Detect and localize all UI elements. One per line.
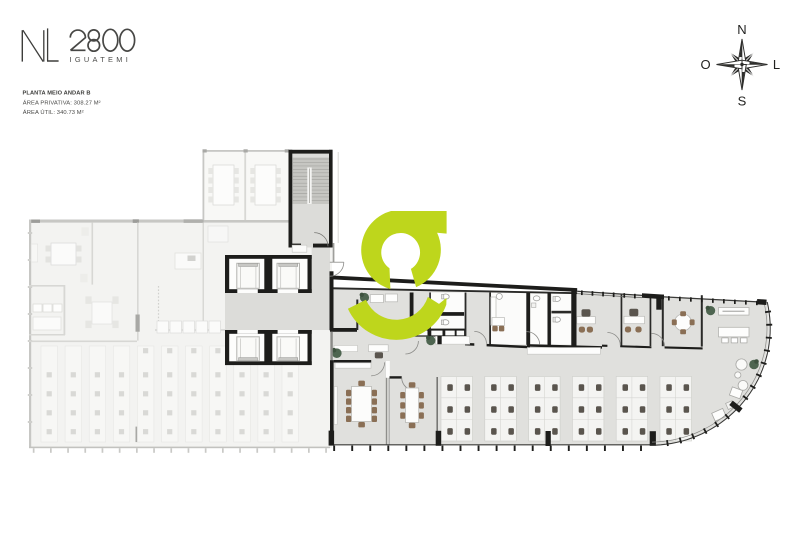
svg-text:ÁREA ÚTIL: 340.73 M²: ÁREA ÚTIL: 340.73 M² [23, 109, 84, 116]
svg-text:PLANTA MEIO ANDAR B: PLANTA MEIO ANDAR B [23, 91, 91, 97]
svg-text:N: N [737, 22, 746, 37]
svg-text:ÁREA PRIVATIVA: 308.27 M²: ÁREA PRIVATIVA: 308.27 M² [23, 100, 101, 107]
svg-text:L: L [773, 57, 780, 72]
svg-text:IGUATEMI: IGUATEMI [70, 55, 132, 64]
svg-text:S: S [738, 94, 747, 109]
svg-text:O: O [700, 57, 710, 72]
